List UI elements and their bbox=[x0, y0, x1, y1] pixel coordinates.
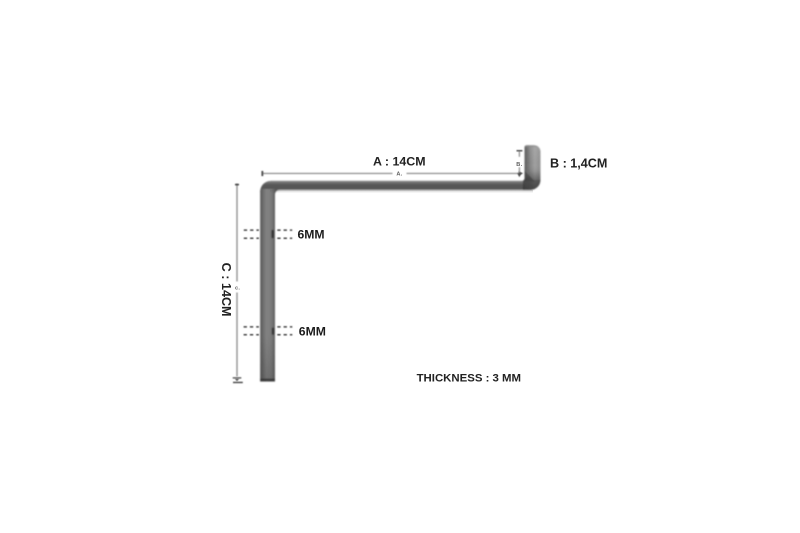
svg-text:C : 14CM: C : 14CM bbox=[219, 263, 233, 317]
svg-text:A.: A. bbox=[396, 172, 402, 178]
svg-text:6MM: 6MM bbox=[298, 227, 325, 241]
svg-text:THICKNESS : 3 MM: THICKNESS : 3 MM bbox=[417, 373, 521, 385]
svg-text:B.: B. bbox=[516, 162, 522, 168]
svg-text:c.: c. bbox=[235, 286, 240, 292]
svg-text:B : 1,4CM: B : 1,4CM bbox=[550, 157, 607, 171]
svg-text:A : 14CM: A : 14CM bbox=[373, 155, 426, 169]
svg-text:6MM: 6MM bbox=[299, 325, 326, 339]
